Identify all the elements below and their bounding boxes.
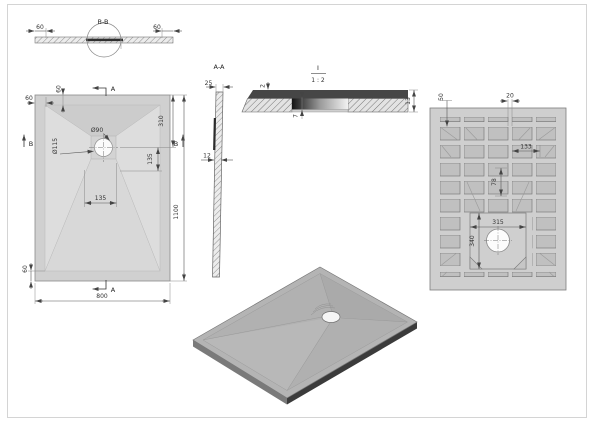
- bottom-view: 50 20 133 78 315: [430, 93, 566, 291]
- dim-bb-left-60: 60: [26, 24, 55, 38]
- section-mark-a-bottom: A: [93, 280, 116, 294]
- drawing-sheet: B-B 60 60: [0, 0, 600, 424]
- dim-detail-2: 2: [260, 82, 269, 89]
- dim-text: 135: [95, 195, 107, 202]
- dim-text: 315: [492, 219, 504, 226]
- dim-text: 310: [158, 115, 165, 127]
- dim-text: 25: [205, 80, 213, 87]
- dim-text: 60: [153, 24, 161, 31]
- section-mark-a-top: A: [93, 85, 116, 96]
- dim-text: 60: [56, 85, 63, 93]
- detail-base-right: [348, 99, 408, 113]
- dim-text: 50: [438, 93, 445, 101]
- detail-scale: 1 : 2: [311, 77, 325, 84]
- dim-text: 13: [405, 97, 412, 105]
- dim-text: 78: [491, 178, 498, 186]
- detail-view-i: I 1 : 2 13 2 7: [242, 64, 418, 119]
- iso-drain-hole: [322, 312, 340, 323]
- section-label: A: [111, 286, 116, 294]
- section-label: B: [174, 140, 178, 148]
- detail-title: I: [317, 64, 319, 72]
- dim-text: 1100: [173, 204, 180, 219]
- section-bb-view: B-B 60 60: [26, 18, 182, 57]
- section-mark-b-right: B: [174, 135, 183, 148]
- detail-base-left: [242, 99, 292, 113]
- rib-row-top: [440, 117, 556, 122]
- dim-text: 340: [469, 235, 476, 247]
- section-bb-drain-cut: [86, 39, 123, 42]
- technical-drawing: B-B 60 60: [0, 0, 600, 424]
- dim-text: Ø115: [52, 138, 59, 154]
- dim-text: 133: [520, 144, 532, 151]
- dim-text: 7: [293, 114, 300, 118]
- section-label: A: [111, 85, 116, 93]
- dim-text: 60: [22, 265, 29, 273]
- section-aa-recess: [214, 118, 215, 150]
- detail-recess: [292, 99, 348, 110]
- top-view: 60 60 A A B B Ø90 Ø115: [22, 85, 187, 304]
- detail-recess-floor: [292, 110, 348, 113]
- dim-text: 135: [147, 153, 154, 165]
- dim-800: 800: [35, 283, 170, 304]
- dim-text: 60: [36, 24, 44, 31]
- section-mark-b-left: B: [24, 135, 33, 148]
- dim-text: Ø90: [91, 127, 104, 134]
- dim-bb-right-60: 60: [153, 24, 182, 38]
- detail-surface-layer: [248, 90, 409, 99]
- section-aa-title: A-A: [214, 63, 226, 71]
- dim-text: 20: [506, 93, 514, 100]
- section-aa-view: A-A 25 12: [201, 63, 233, 277]
- section-bb-title: B-B: [97, 18, 108, 26]
- dim-text: 800: [96, 293, 108, 300]
- dim-text: 12: [203, 153, 211, 160]
- isometric-view: [193, 267, 417, 405]
- section-label: B: [29, 140, 33, 148]
- dim-text: 60: [25, 95, 33, 102]
- dim-text: 2: [260, 84, 267, 88]
- rib-row-bottom: [440, 272, 556, 277]
- dim-1100: 1100: [170, 95, 187, 281]
